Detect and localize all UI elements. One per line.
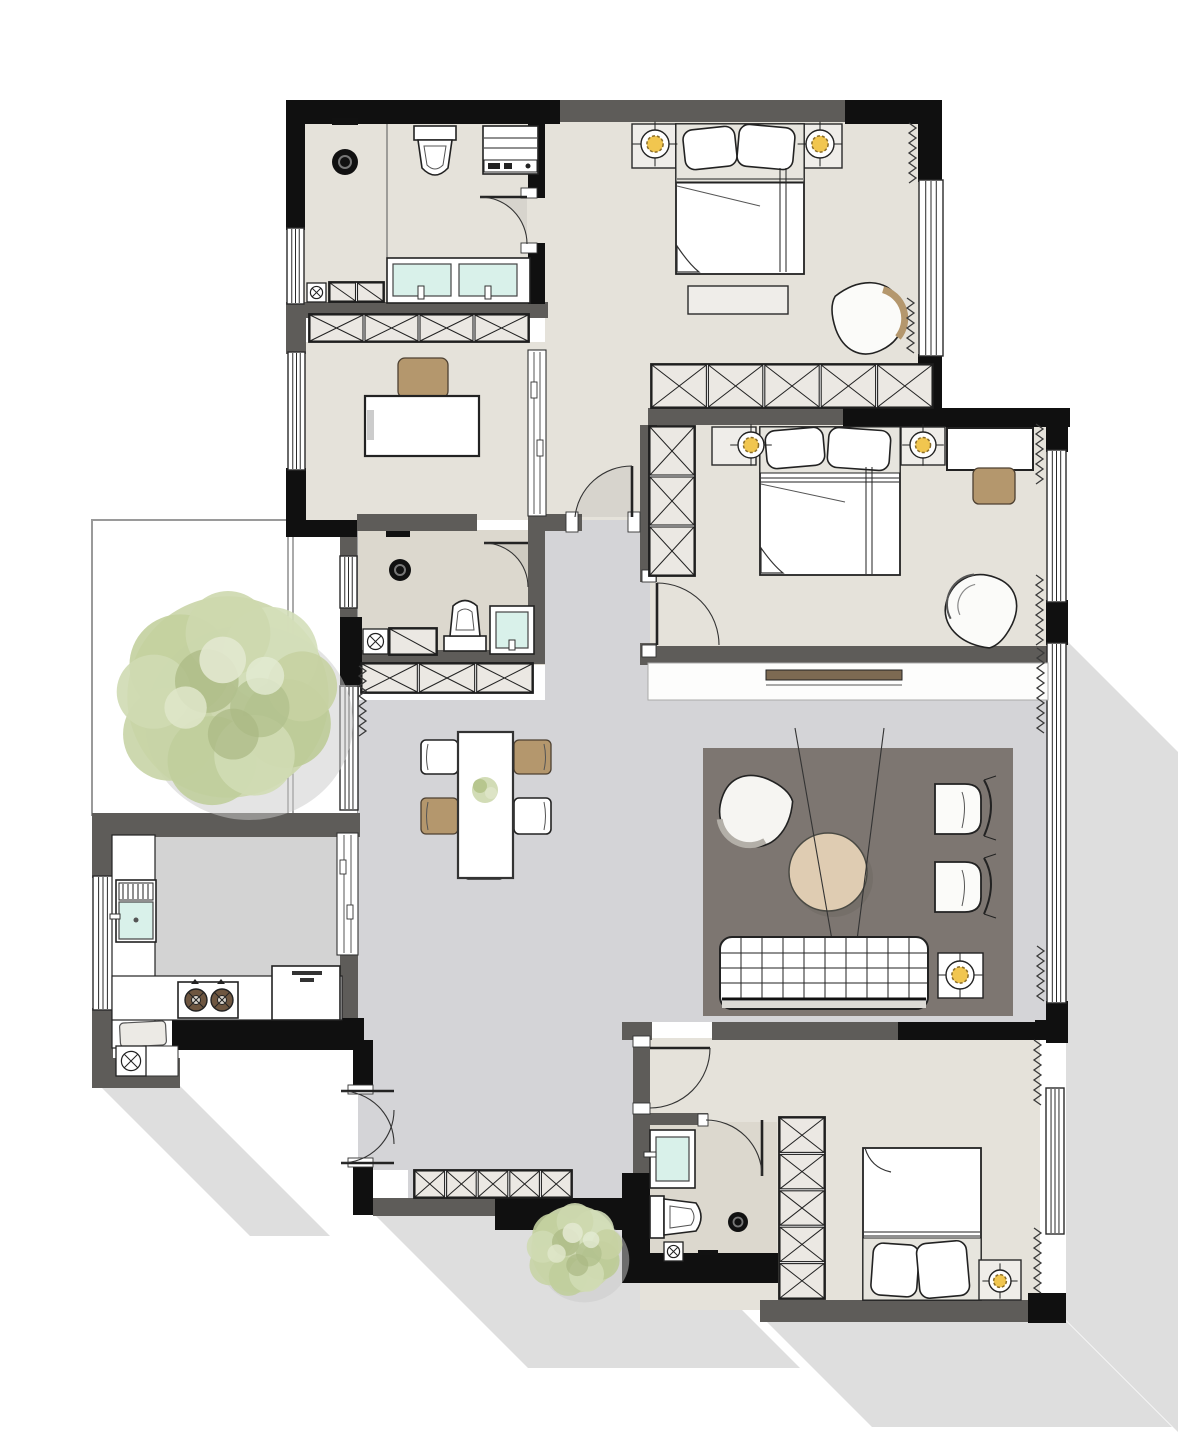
low-cabinet-icon [389, 628, 437, 655]
washbasin-icon [490, 606, 534, 654]
sliding-door-study [528, 350, 546, 516]
shower-valve-icon [332, 118, 358, 125]
refrigerator-icon [272, 966, 340, 1020]
wardrobe-cabinet-icon [649, 426, 695, 576]
floor-plan-page: Apartment floor plan — top-down furnishe… [0, 0, 1200, 1453]
window-icon [1047, 643, 1066, 1003]
pillow [764, 427, 825, 470]
desk-chair [398, 358, 448, 398]
pillow [682, 125, 738, 170]
vent-glyph [386, 531, 410, 537]
window-icon [288, 352, 305, 470]
sofa [720, 937, 928, 1009]
low-cabinet-icon [329, 282, 384, 302]
cutting-board-icon [119, 1021, 166, 1047]
window-icon [1047, 450, 1066, 602]
window-icon [287, 228, 304, 304]
table-plant-icon [472, 777, 498, 803]
pillow [827, 427, 892, 471]
double-bed [863, 1148, 981, 1300]
floor-kitchen [155, 835, 340, 977]
washbasin-icon [644, 1130, 695, 1188]
cooktop-icon [178, 979, 238, 1018]
pillow [736, 124, 795, 171]
shower-drain-icon [332, 149, 358, 175]
window-icon [1046, 1088, 1064, 1234]
floor-vent-icon [363, 629, 388, 654]
window-icon [919, 180, 943, 356]
pillow [916, 1240, 971, 1299]
sliding-door-kitchen [337, 833, 358, 955]
desk [365, 396, 479, 456]
wardrobe-cabinet-icon [414, 1170, 572, 1198]
double-vanity-icon [387, 258, 530, 303]
window-icon [340, 556, 357, 608]
floor-vent-icon [307, 283, 326, 302]
floor-drain-icon [728, 1212, 748, 1232]
washing-machine-icon [483, 126, 538, 174]
floor-vent-icon [664, 1242, 683, 1261]
double-bed [676, 124, 804, 274]
floor-vent-icon [116, 1046, 146, 1076]
double-bed [760, 427, 900, 575]
floor-drain-icon [389, 559, 411, 581]
bed-bench [688, 286, 788, 314]
kitchen-sink-icon [110, 880, 156, 942]
desk [947, 428, 1033, 470]
desk-chair [973, 468, 1015, 504]
dining-table [458, 732, 513, 878]
window-icon [93, 876, 113, 1010]
counter-box [146, 1046, 178, 1076]
tv-console [648, 663, 1048, 700]
pillow [870, 1242, 920, 1297]
wardrobe-cabinet-icon [361, 663, 533, 693]
wardrobe-cabinet-icon [309, 314, 529, 342]
toilet-icon [650, 1196, 701, 1238]
floor-plan: Apartment floor plan — top-down furnishe… [0, 0, 1200, 1453]
tv-icon [766, 670, 902, 680]
wardrobe-cabinet-icon [779, 1117, 825, 1299]
wardrobe-cabinet-icon [651, 364, 933, 408]
vent-glyph [698, 1250, 718, 1255]
